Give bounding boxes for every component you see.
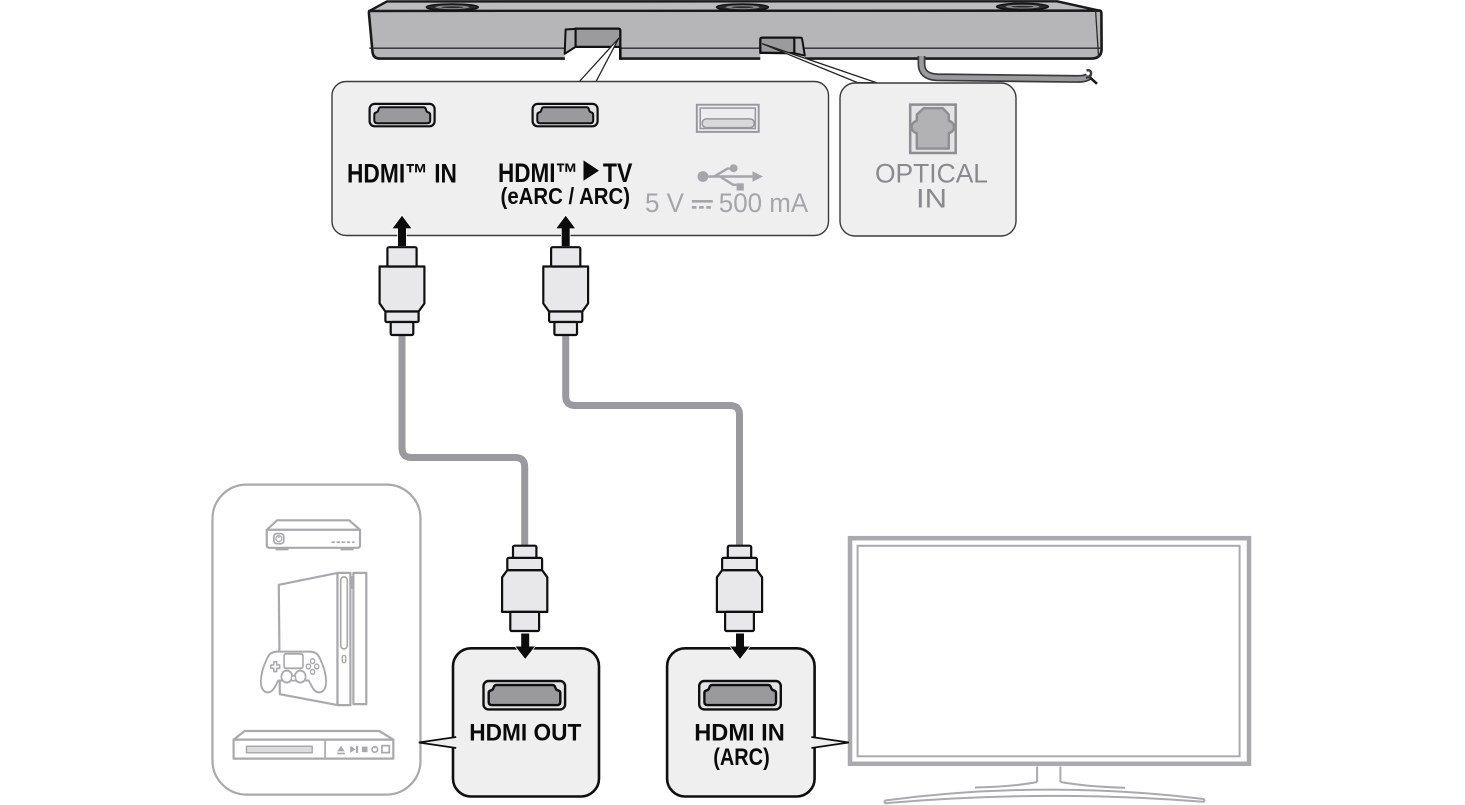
svg-text:HDMI IN: HDMI IN [694, 720, 785, 747]
svg-text:(ARC): (ARC) [713, 744, 769, 771]
svg-text:5 V: 5 V [645, 188, 684, 218]
svg-text:(eARC / ARC): (eARC / ARC) [501, 183, 631, 209]
svg-text:HDMI™ IN: HDMI™ IN [347, 159, 457, 189]
svg-text:IN: IN [916, 184, 947, 214]
svg-text:HDMI OUT: HDMI OUT [469, 720, 581, 747]
svg-text:500 mA: 500 mA [719, 188, 808, 218]
